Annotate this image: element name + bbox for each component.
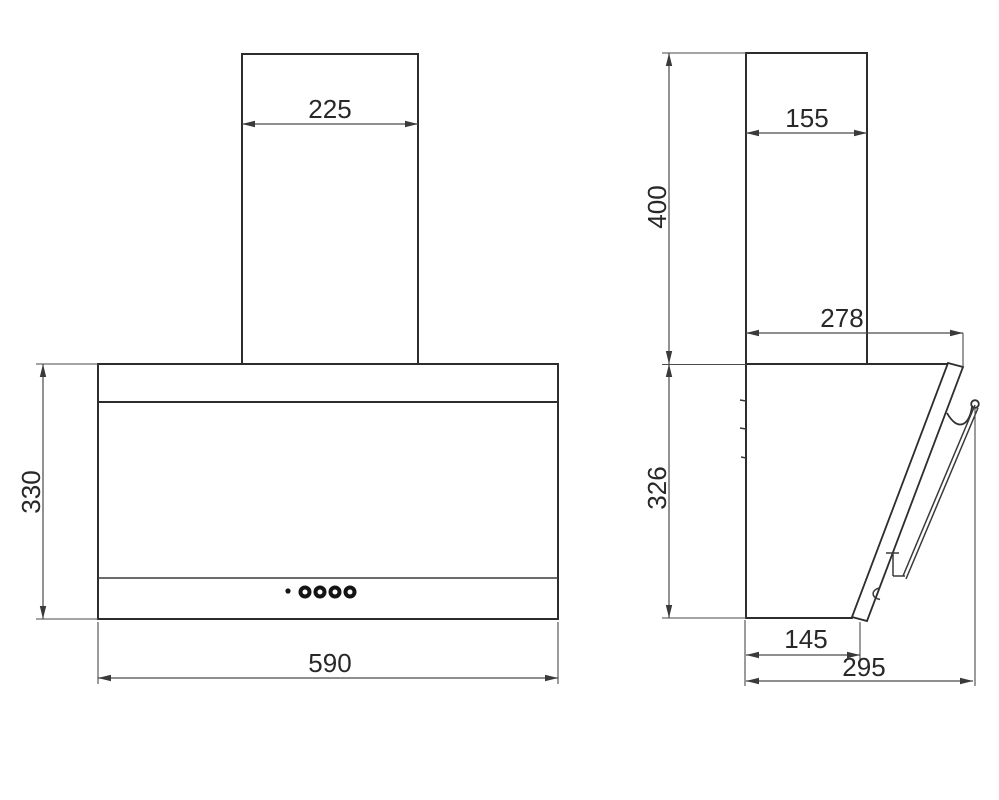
front-view	[98, 54, 558, 619]
dim-front-chimney-width: 225	[242, 94, 418, 127]
control-button-3	[331, 588, 340, 597]
dim-label-side-chimney-depth: 155	[785, 103, 828, 133]
dim-label-side-chimney-height: 400	[642, 185, 672, 228]
dim-label-front-body-height: 330	[16, 470, 46, 513]
dim-label-front-body-width: 590	[308, 648, 351, 678]
control-button-2	[316, 588, 325, 597]
glass-panel	[852, 363, 963, 621]
dim-label-side-top-depth: 278	[820, 303, 863, 333]
dim-label-side-body-height: 326	[642, 466, 672, 509]
dim-side-chimney-height: 400	[642, 53, 746, 365]
dim-side-chimney-depth: 155	[746, 103, 867, 136]
dim-side-body-height: 326	[642, 364, 746, 618]
control-panel	[285, 588, 354, 597]
technical-drawing-sheet: 225 330 590 155 400	[0, 0, 999, 800]
indicator-dot	[285, 588, 290, 593]
dim-front-body-width: 590	[98, 622, 558, 684]
dim-label-side-bottom-depth: 145	[784, 624, 827, 654]
side-body-outline	[746, 364, 948, 618]
extension-lines	[662, 53, 746, 365]
dim-side-top-depth: 278	[746, 303, 963, 367]
dim-label-front-chimney-width: 225	[308, 94, 351, 124]
dimension-diagram: 225 330 590 155 400	[0, 0, 999, 800]
control-button-4	[346, 588, 355, 597]
dim-front-body-height: 330	[16, 364, 98, 619]
control-button-1	[301, 588, 310, 597]
dim-label-side-overall-depth: 295	[842, 652, 885, 682]
side-view	[740, 53, 979, 621]
